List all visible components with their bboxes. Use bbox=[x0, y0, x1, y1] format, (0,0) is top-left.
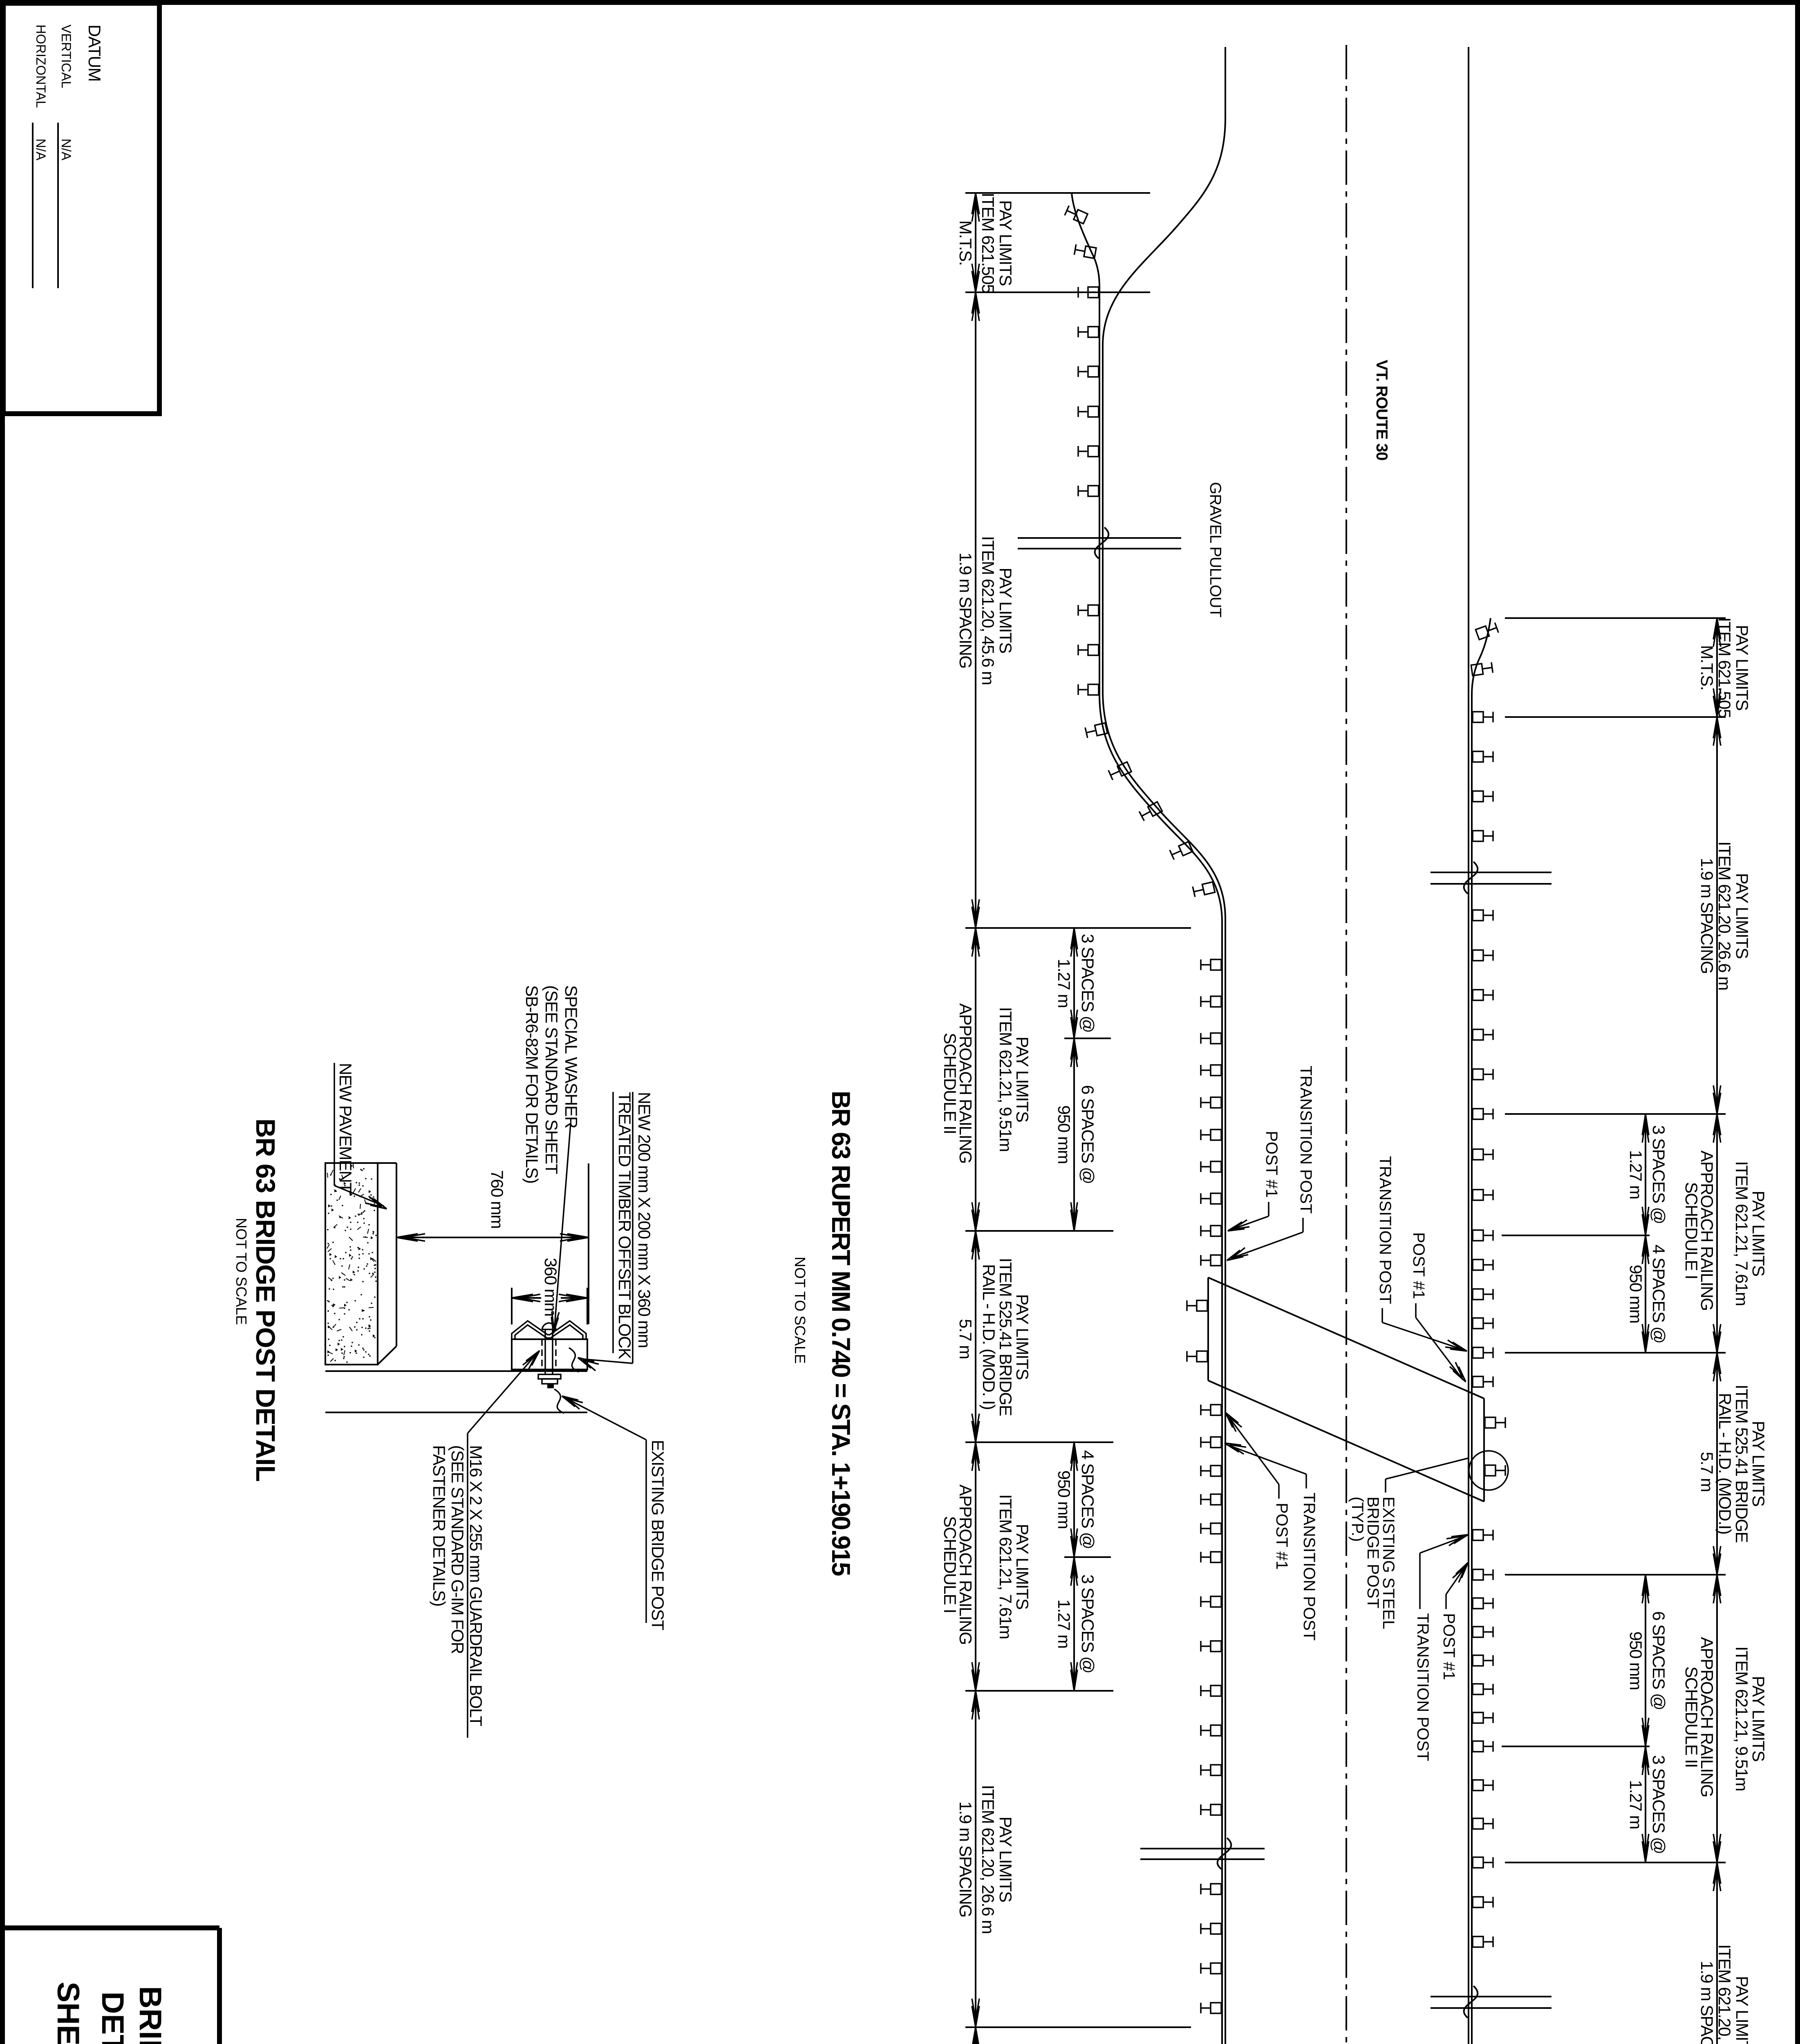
svg-text:NOT TO SCALE: NOT TO SCALE bbox=[792, 1257, 808, 1364]
svg-text:BRIDGE POST: BRIDGE POST bbox=[1364, 1497, 1382, 1608]
svg-text:PAY LIMITS: PAY LIMITS bbox=[1749, 1421, 1768, 1506]
svg-text:760 mm: 760 mm bbox=[488, 1170, 507, 1228]
svg-text:PAY LIMITS: PAY LIMITS bbox=[1013, 1036, 1032, 1122]
svg-text:BR 63 BRIDGE POST DETAIL: BR 63 BRIDGE POST DETAIL bbox=[251, 1118, 281, 1481]
svg-text:PAY LIMITS: PAY LIMITS bbox=[996, 1816, 1015, 1902]
svg-text:SCHEDULE I: SCHEDULE I bbox=[940, 1516, 960, 1613]
svg-text:(SEE STANDARD G-IM FOR: (SEE STANDARD G-IM FOR bbox=[448, 1445, 467, 1654]
svg-text:TREATED TIMBER OFFSET BLOCK: TREATED TIMBER OFFSET BLOCK bbox=[615, 1092, 634, 1359]
svg-text:PAY LIMITS: PAY LIMITS bbox=[1749, 1676, 1768, 1762]
svg-text:ITEM 621.21, 9.51m: ITEM 621.21, 9.51m bbox=[996, 1007, 1015, 1152]
svg-text:ITEM 621.20, 26.6 m: ITEM 621.20, 26.6 m bbox=[1715, 841, 1734, 990]
svg-text:4 SPACES @: 4 SPACES @ bbox=[1078, 1450, 1097, 1549]
svg-text:6 SPACES @: 6 SPACES @ bbox=[1649, 1611, 1668, 1710]
svg-text:6 SPACES @: 6 SPACES @ bbox=[1078, 1085, 1097, 1184]
svg-text:ITEM 621.21, 7.61m: ITEM 621.21, 7.61m bbox=[996, 1494, 1015, 1639]
svg-text:HORIZONTAL: HORIZONTAL bbox=[34, 25, 48, 108]
svg-text:NEW 200 mm X 200 mm X 360 mm: NEW 200 mm X 200 mm X 360 mm bbox=[635, 1092, 654, 1348]
svg-text:POST #1: POST #1 bbox=[1263, 1131, 1281, 1198]
svg-text:950 mm: 950 mm bbox=[1626, 1632, 1646, 1690]
svg-text:GRAVEL PULLOUT: GRAVEL PULLOUT bbox=[1207, 482, 1224, 617]
svg-text:(SEE STANDARD SHEET: (SEE STANDARD SHEET bbox=[542, 985, 561, 1174]
svg-text:NOT TO SCALE: NOT TO SCALE bbox=[233, 1218, 250, 1325]
svg-text:N/A: N/A bbox=[59, 139, 74, 161]
svg-text:FASTENER DETAILS): FASTENER DETAILS) bbox=[430, 1445, 449, 1606]
svg-text:DATUM: DATUM bbox=[85, 25, 104, 81]
svg-text:3 SPACES @: 3 SPACES @ bbox=[1078, 934, 1097, 1033]
svg-text:SPECIAL WASHER: SPECIAL WASHER bbox=[562, 985, 581, 1128]
svg-text:PAY LIMITS: PAY LIMITS bbox=[1733, 873, 1752, 959]
svg-text:TRANSITION POST: TRANSITION POST bbox=[1300, 1493, 1318, 1641]
svg-text:PAY LIMITS: PAY LIMITS bbox=[1013, 1524, 1032, 1609]
svg-text:SHEET 3: SHEET 3 bbox=[51, 1982, 85, 2044]
svg-text:ITEM 621.20, 45.6 m: ITEM 621.20, 45.6 m bbox=[978, 536, 998, 685]
svg-text:(TYP.): (TYP.) bbox=[1348, 1497, 1366, 1542]
svg-text:3 SPACES @: 3 SPACES @ bbox=[1649, 1755, 1668, 1854]
svg-text:TRANSITION POST: TRANSITION POST bbox=[1297, 1066, 1315, 1214]
svg-text:1.27 m: 1.27 m bbox=[1054, 1599, 1074, 1648]
svg-text:3 SPACES @: 3 SPACES @ bbox=[1078, 1574, 1097, 1673]
svg-text:POST #1: POST #1 bbox=[1273, 1503, 1291, 1570]
svg-text:POST #1: POST #1 bbox=[1410, 1232, 1428, 1299]
svg-text:TRANSITION POST: TRANSITION POST bbox=[1414, 1613, 1432, 1761]
svg-text:3 SPACES @: 3 SPACES @ bbox=[1649, 1125, 1668, 1224]
svg-text:ITEM 621.21, 9.51m: ITEM 621.21, 9.51m bbox=[1732, 1646, 1751, 1791]
svg-text:4 SPACES @: 4 SPACES @ bbox=[1649, 1244, 1668, 1343]
svg-text:ITEM 621.21, 7.61m: ITEM 621.21, 7.61m bbox=[1732, 1161, 1751, 1306]
svg-text:1.9 m SPACING: 1.9 m SPACING bbox=[1697, 1961, 1717, 2044]
svg-text:950 mm: 950 mm bbox=[1054, 1105, 1074, 1164]
svg-text:PAY LIMITS: PAY LIMITS bbox=[1733, 1976, 1752, 2044]
svg-text:N/A: N/A bbox=[34, 139, 48, 161]
svg-text:PAY LIMITS: PAY LIMITS bbox=[996, 200, 1015, 286]
svg-text:BRIDGE: BRIDGE bbox=[133, 1986, 168, 2044]
svg-text:PAY LIMITS: PAY LIMITS bbox=[1013, 1294, 1032, 1380]
svg-text:RAIL - H.D. (MOD.I): RAIL - H.D. (MOD.I) bbox=[1715, 1393, 1735, 1534]
svg-text:EXISTING STEEL: EXISTING STEEL bbox=[1379, 1497, 1397, 1629]
svg-text:POST #1: POST #1 bbox=[1440, 1613, 1458, 1680]
svg-text:1.27 m: 1.27 m bbox=[1626, 1780, 1646, 1829]
svg-text:NEW PAVEMENT: NEW PAVEMENT bbox=[336, 1063, 355, 1192]
svg-text:M16 X 2 X 255 mm GUARDRAIL BOL: M16 X 2 X 255 mm GUARDRAIL BOLT bbox=[466, 1445, 486, 1726]
svg-text:1.9 m SPACING: 1.9 m SPACING bbox=[956, 552, 975, 668]
svg-text:ITEM 621.505: ITEM 621.505 bbox=[1715, 617, 1734, 718]
svg-text:PAY LIMITS: PAY LIMITS bbox=[1733, 625, 1752, 710]
svg-text:1.27 m: 1.27 m bbox=[1626, 1150, 1646, 1199]
svg-text:DETAIL: DETAIL bbox=[95, 1992, 130, 2044]
svg-text:ITEM 525.41 BRIDGE: ITEM 525.41 BRIDGE bbox=[1732, 1385, 1751, 1543]
svg-text:SCHEDULE II: SCHEDULE II bbox=[1682, 1666, 1701, 1767]
svg-text:PAY LIMITS: PAY LIMITS bbox=[996, 567, 1015, 653]
svg-text:950 mm: 950 mm bbox=[1626, 1265, 1646, 1323]
svg-text:ITEM 621.20, 26.6 m: ITEM 621.20, 26.6 m bbox=[978, 1785, 998, 1934]
svg-text:5.7 m: 5.7 m bbox=[1697, 1452, 1717, 1492]
svg-text:VERTICAL: VERTICAL bbox=[59, 25, 74, 88]
svg-text:EXISTING BRIDGE POST: EXISTING BRIDGE POST bbox=[648, 1440, 667, 1630]
svg-text:PAY LIMITS: PAY LIMITS bbox=[1749, 1190, 1768, 1276]
svg-text:950 mm: 950 mm bbox=[1054, 1470, 1074, 1529]
svg-text:VT. ROUTE 30: VT. ROUTE 30 bbox=[1373, 360, 1390, 460]
svg-text:TRANSITION POST: TRANSITION POST bbox=[1376, 1156, 1394, 1304]
svg-text:M.T.S.: M.T.S. bbox=[1697, 645, 1717, 690]
svg-text:ITEM 621.20, 64.6 m: ITEM 621.20, 64.6 m bbox=[1715, 1944, 1734, 2044]
svg-text:SCHEDULE I: SCHEDULE I bbox=[1682, 1182, 1701, 1279]
svg-text:1.9 m SPACING: 1.9 m SPACING bbox=[956, 1801, 975, 1917]
svg-text:RAIL - H.D. (MOD. I): RAIL - H.D. (MOD. I) bbox=[979, 1264, 999, 1410]
svg-text:SB-R6-82M FOR DETAILS): SB-R6-82M FOR DETAILS) bbox=[522, 985, 542, 1183]
svg-text:5.7 m: 5.7 m bbox=[956, 1319, 975, 1359]
svg-text:SCHEDULE II: SCHEDULE II bbox=[940, 1033, 960, 1134]
svg-text:ITEM 525.41 BRIDGE: ITEM 525.41 BRIDGE bbox=[996, 1258, 1015, 1416]
svg-text:M.T.S.: M.T.S. bbox=[956, 220, 975, 265]
svg-text:1.9 m SPACING: 1.9 m SPACING bbox=[1697, 858, 1717, 973]
svg-text:BR 63 RUPERT MM 0.740 = ST: BR 63 RUPERT MM 0.740 = STA. 1+190.915 bbox=[826, 1091, 855, 1576]
svg-text:1.27 m: 1.27 m bbox=[1054, 959, 1074, 1007]
svg-text:ITEM 621.505: ITEM 621.505 bbox=[978, 193, 998, 293]
